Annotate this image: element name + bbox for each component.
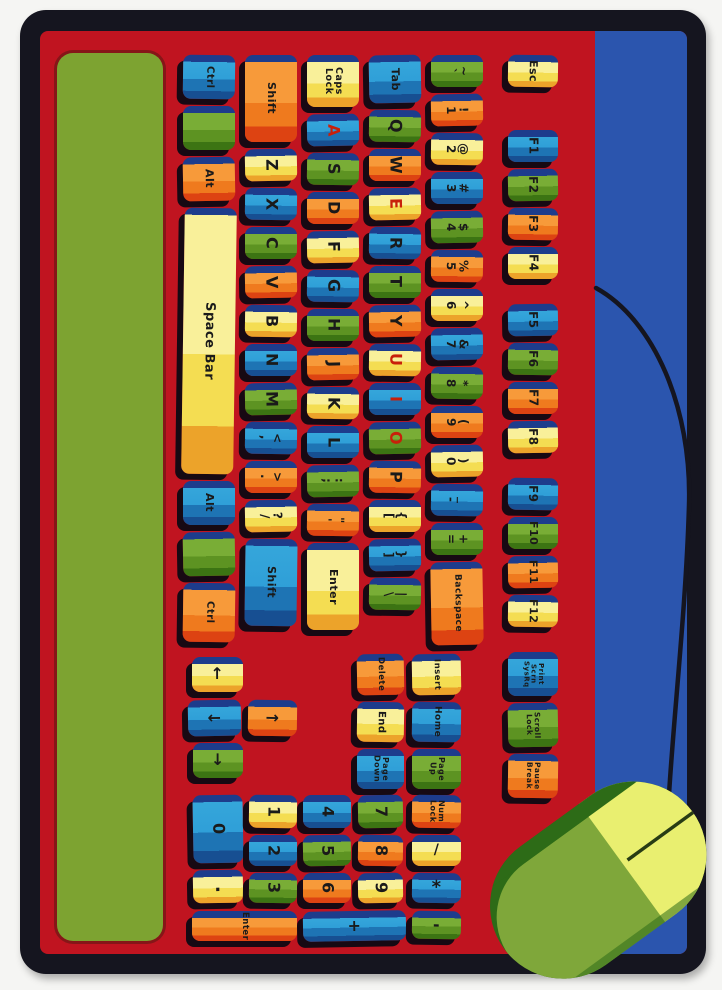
key-enter: Enter [192, 911, 297, 941]
key-label: F7 [527, 389, 540, 407]
key-label: + = [444, 534, 469, 545]
key-v: V [245, 266, 298, 299]
key-f10: F10 [508, 517, 558, 549]
key-label: ↓ [211, 752, 225, 769]
key-symbol: ← [188, 700, 242, 737]
key-symbol: } ] [369, 539, 422, 572]
key-h: H [307, 309, 359, 341]
key-2: 2 [249, 835, 297, 866]
key-label: I [387, 396, 404, 402]
key-0: ) 0 [431, 445, 484, 478]
key-label: L [325, 437, 342, 448]
key-label: S [325, 163, 342, 175]
key-6: ^ 6 [431, 289, 483, 321]
key-page-down: Page Down [357, 749, 404, 789]
keyboard-keys-layer: CtrlAltSpace BarAltCtrlShiftZXCVBNM< ,> … [0, 0, 722, 990]
key-label: C [263, 237, 280, 249]
key-symbol: + = [431, 523, 483, 555]
key-label: A [324, 123, 341, 136]
key-label: ~ ` [444, 66, 469, 77]
key-enter: Enter [307, 543, 359, 630]
key-f2: F2 [508, 169, 559, 202]
key-label: 3 [265, 882, 282, 894]
key-label: ^ 6 [444, 300, 469, 311]
key-label: B [263, 315, 280, 328]
key-tab: Tab [369, 55, 422, 104]
key-label: 6 [319, 882, 336, 894]
key-5: % 5 [431, 250, 483, 283]
key-symbol: ? / [245, 500, 298, 533]
key-label: $ 4 [444, 222, 469, 231]
key-label: / [434, 843, 440, 858]
key-label: Esc [527, 60, 539, 82]
key-label: T [387, 276, 404, 287]
key-label: Ctrl [204, 66, 215, 89]
key-6: 6 [303, 873, 351, 903]
key-label: Alt [203, 493, 215, 512]
key-label: E [386, 198, 403, 210]
key-f: F [307, 231, 360, 264]
key-s: S [307, 153, 359, 186]
key-label: Home [432, 706, 442, 737]
key-label: F12 [527, 599, 539, 623]
key-home: Home [412, 702, 462, 743]
key-c: C [245, 227, 297, 259]
key-symbol: → [248, 700, 297, 737]
key-label: 1 [265, 806, 282, 818]
key-symbol: < , [245, 422, 297, 455]
key-w: W [369, 149, 421, 181]
key-label: 5 [318, 845, 335, 857]
key-end: End [357, 702, 405, 743]
key-symbol: { [ [369, 500, 421, 532]
key-blank [183, 532, 236, 577]
key-q: Q [369, 110, 421, 143]
key-g: G [307, 270, 359, 303]
key-label: F1 [527, 137, 540, 155]
key-label: 0 [209, 823, 226, 835]
key-num-lock: Num Lock [412, 795, 461, 829]
key-pause-break: Pause Break [508, 754, 559, 799]
key-label: " ' [320, 516, 345, 523]
key-label: % 5 [444, 260, 469, 273]
key-label: * 8 [444, 378, 469, 387]
key-label: Caps Lock [323, 67, 343, 95]
key-symbol: _ - [431, 484, 483, 517]
key-symbol: ~ ` [431, 55, 483, 87]
key-label: _ - [444, 497, 469, 504]
key-1: ! 1 [431, 94, 484, 127]
key-label: ! 1 [444, 105, 469, 114]
key-f1: F1 [508, 130, 558, 162]
key-symbol: . [193, 870, 244, 904]
key-label: → [265, 709, 279, 726]
key-alt: Alt [183, 481, 235, 525]
key-8: * 8 [431, 367, 483, 400]
key-8: 8 [358, 835, 403, 867]
key-2: @ 2 [431, 133, 483, 166]
key-1: 1 [249, 795, 297, 829]
key-label: @ 2 [444, 143, 469, 156]
key-label: P [387, 471, 404, 483]
key-5: 5 [303, 835, 352, 867]
key-label: Ctrl [204, 601, 215, 624]
key-label: F8 [527, 428, 540, 446]
key-blank [183, 106, 235, 150]
key-label: Insert [432, 659, 441, 690]
key-f7: F7 [508, 382, 558, 414]
key-label: H [325, 318, 342, 332]
key-4: 4 [303, 795, 351, 828]
key-symbol: ↓ [193, 743, 243, 778]
key-m: M [245, 383, 298, 416]
key-t: T [369, 266, 421, 298]
key-x: X [245, 188, 297, 221]
key-alt: Alt [183, 157, 236, 202]
key-label: F10 [527, 521, 539, 545]
key-label: 2 [265, 845, 282, 857]
key-label: V [262, 275, 279, 288]
key-label: F4 [527, 254, 540, 272]
key-label: > . [258, 472, 283, 483]
key-label: 8 [372, 845, 389, 857]
key-label: Shift [265, 82, 277, 114]
key-label: F11 [527, 560, 539, 585]
key-label: 7 [372, 806, 389, 818]
key-symbol: " ' [307, 504, 359, 537]
key-label: X [263, 197, 280, 210]
key-label: Delete [376, 657, 386, 691]
key-label: D [325, 201, 342, 215]
keyboard-rug-photo: CtrlAltSpace BarAltCtrlShiftZXCVBNM< ,> … [0, 0, 722, 990]
key-label: ↑ [211, 666, 225, 683]
key-label: Space Bar [202, 302, 217, 380]
key-label: G [324, 279, 341, 293]
key-label: Enter [240, 912, 249, 940]
key-delete: Delete [357, 654, 405, 696]
key-label: Print Scrn SysRq [522, 661, 544, 688]
key-label: Enter [327, 569, 339, 605]
key-label: F5 [527, 311, 540, 329]
key-label: F3 [527, 215, 540, 233]
key-label: : ; [320, 478, 345, 484]
key-label: } ] [382, 550, 407, 559]
key-label: N [263, 353, 280, 367]
key-l: L [307, 426, 359, 458]
key-p: P [369, 461, 421, 494]
key-label: Shift [265, 566, 277, 598]
key-9: 9 [358, 873, 404, 904]
key-f4: F4 [508, 247, 558, 279]
key-f3: F3 [508, 208, 558, 241]
key-symbol: + [303, 910, 407, 942]
key-label: Q [386, 119, 403, 133]
key-symbol: : ; [307, 465, 360, 498]
key-symbol: > . [245, 461, 297, 493]
key-label: ( 9 [444, 418, 469, 427]
key-label: F [324, 241, 341, 253]
key-label: Alt [203, 169, 215, 188]
key-k: K [307, 387, 359, 420]
key-f5: F5 [508, 304, 559, 337]
key-label: M [262, 391, 279, 408]
key-ctrl: Ctrl [183, 583, 236, 643]
key-label: * [431, 878, 441, 897]
key-label: Z [262, 159, 279, 171]
key-f11: F11 [508, 556, 559, 589]
key-7: 7 [358, 795, 404, 829]
key-insert: Insert [412, 654, 462, 696]
key-print-scrn-sysrq: Print Scrn SysRq [508, 652, 558, 696]
key-symbol: / [412, 835, 461, 866]
key-b: B [245, 305, 297, 338]
key-a: A [307, 114, 360, 147]
key-label: O [386, 431, 403, 445]
key-symbol: | \ [369, 578, 421, 611]
key-z: Z [245, 149, 298, 182]
key-label: { [ [382, 511, 407, 520]
key-label: 9 [372, 882, 389, 894]
key-j: J [307, 348, 360, 381]
key-label: Backspace [452, 574, 462, 632]
key-label: F6 [527, 350, 540, 368]
key-r: R [369, 227, 421, 260]
key-symbol: ↑ [192, 657, 243, 692]
key-y: Y [369, 305, 422, 338]
key-esc: Esc [508, 55, 558, 88]
key-label: ← [207, 709, 221, 726]
key-symbol: * [412, 873, 461, 904]
key-label: U [387, 353, 404, 367]
key-symbol: - [412, 911, 461, 940]
key-ctrl: Ctrl [183, 55, 236, 100]
key-label: ) 0 [444, 456, 469, 465]
key-label: < , [258, 433, 283, 444]
key-label: Scroll Lock [525, 711, 541, 738]
key-label: - [433, 917, 440, 934]
key-label: Tab [389, 67, 401, 90]
key-caps-lock: Caps Lock [307, 55, 359, 107]
key-f9: F9 [508, 478, 558, 511]
key-label: + [347, 917, 361, 934]
key-label: F2 [527, 176, 540, 194]
key-label: | \ [382, 591, 407, 596]
key-e: E [369, 188, 422, 221]
key-o: O [369, 422, 422, 455]
key-f8: F8 [508, 421, 559, 454]
key-3: 3 [249, 873, 297, 904]
key-label: F9 [527, 485, 540, 503]
key-4: $ 4 [431, 211, 484, 244]
key-label: End [375, 711, 386, 734]
key-scroll-lock: Scroll Lock [508, 703, 559, 748]
key-label: Page Down [372, 755, 389, 782]
key-label: # 3 [444, 183, 469, 194]
key-f12: F12 [508, 595, 558, 628]
key-n: N [245, 344, 297, 376]
key-shift: Shift [244, 539, 297, 627]
key-label: ? / [258, 512, 283, 520]
key-label: Num Lock [428, 800, 445, 823]
key-label: Page Up [428, 757, 445, 781]
key-shift: Shift [245, 55, 297, 142]
key-label: & 7 [444, 338, 469, 349]
key-u: U [369, 344, 421, 377]
key-9: ( 9 [431, 406, 483, 438]
key-d: D [307, 192, 359, 224]
key-i: I [369, 383, 421, 415]
key-space-bar: Space Bar [181, 208, 237, 475]
key-f6: F6 [508, 343, 558, 376]
key-label: Y [386, 315, 403, 327]
key-label: 4 [319, 806, 336, 818]
key-label: Pause Break [525, 762, 541, 790]
key-label: J [325, 361, 342, 368]
key-label: . [214, 877, 222, 896]
key-0: 0 [192, 795, 243, 864]
key-label: R [387, 236, 404, 249]
key-backspace: Backspace [430, 562, 483, 646]
key-label: W [387, 156, 404, 174]
key-page-up: Page Up [412, 749, 461, 789]
key-3: # 3 [431, 172, 483, 204]
key-label: K [325, 396, 342, 409]
key-7: & 7 [431, 328, 484, 361]
